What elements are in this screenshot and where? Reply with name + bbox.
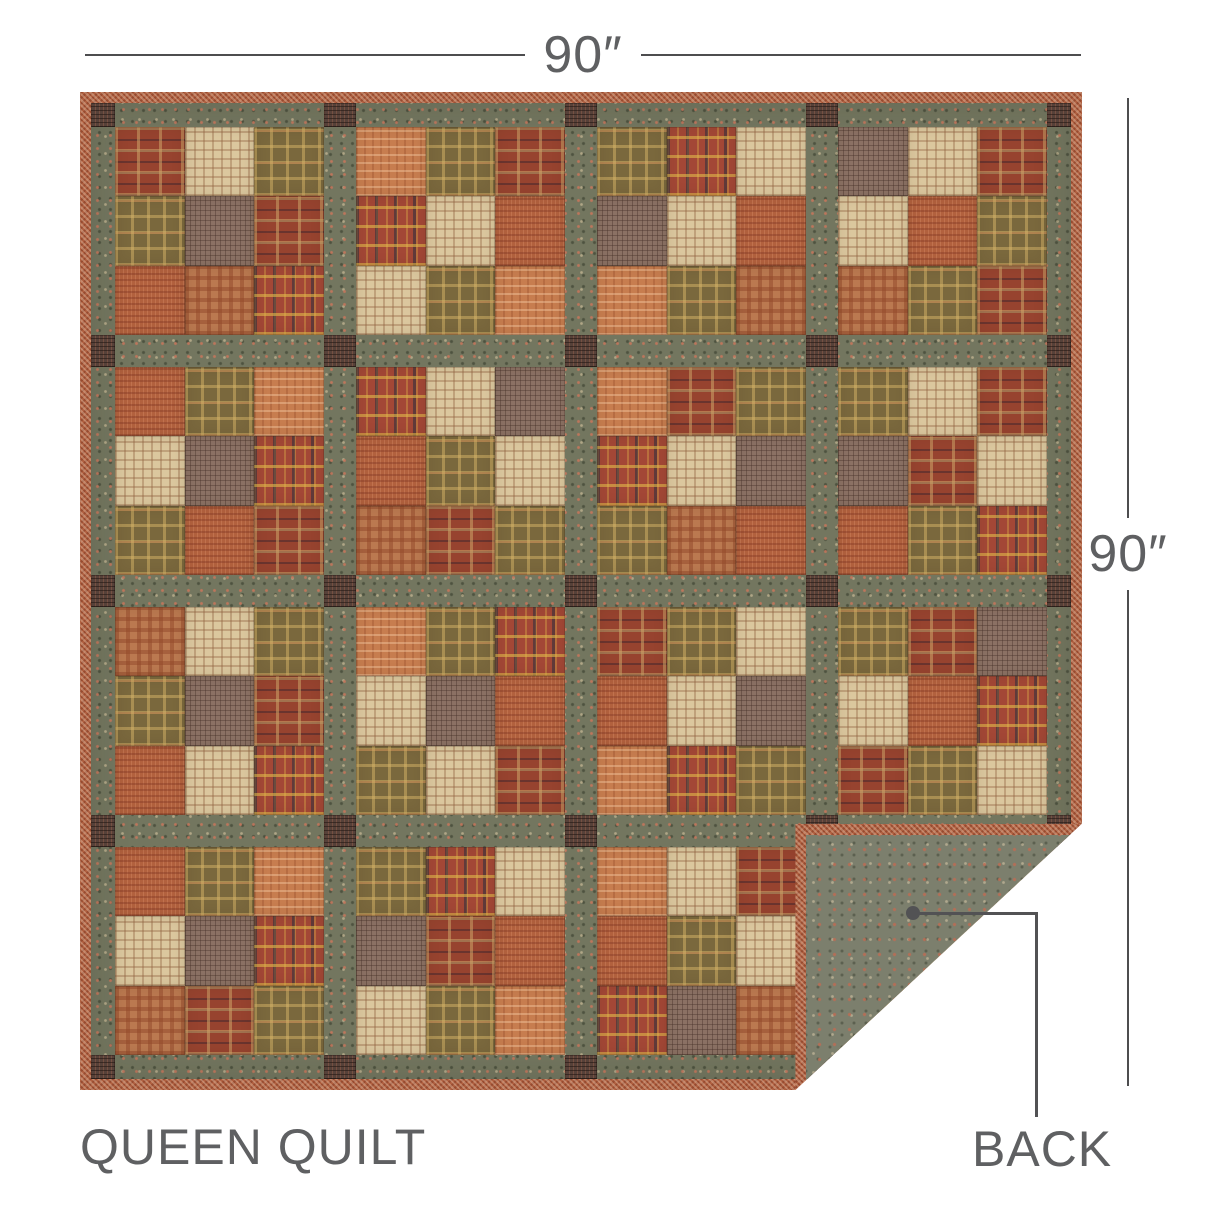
width-dimension-label: 90″ (525, 29, 640, 81)
quilt-patch (495, 367, 565, 436)
corner-post (91, 575, 115, 607)
corner-post (91, 815, 115, 847)
quilt-block (838, 367, 1047, 575)
product-dimension-diagram: 90″ 90″ QUEEN QUILT BACK (0, 0, 1214, 1214)
quilt-patch (838, 196, 908, 265)
quilt-patch (667, 607, 737, 676)
quilt-photo (80, 92, 1082, 1090)
quilt-block (115, 367, 324, 575)
corner-post (565, 815, 597, 847)
corner-post (1047, 103, 1071, 127)
quilt-patch (185, 266, 255, 335)
quilt-patch (356, 436, 426, 505)
corner-post (806, 103, 838, 127)
width-dimension-line-right (641, 54, 1081, 56)
quilt-patch (667, 266, 737, 335)
quilt-patch (977, 506, 1047, 575)
quilt-patch (736, 676, 806, 745)
corner-post (324, 575, 356, 607)
back-label: BACK (972, 1124, 1108, 1174)
quilt-patch (185, 127, 255, 196)
height-dimension: 90″ (1102, 98, 1154, 1086)
quilt-patch (597, 436, 667, 505)
quilt-patch (254, 746, 324, 815)
corner-post (324, 335, 356, 367)
quilt-patch (115, 916, 185, 985)
quilt-patch (667, 436, 737, 505)
quilt-block (597, 847, 806, 1055)
quilt-patch (667, 506, 737, 575)
quilt-patch (115, 196, 185, 265)
quilt-patch (597, 127, 667, 196)
quilt-patch (736, 196, 806, 265)
quilt-patch (495, 506, 565, 575)
quilt-patch (115, 367, 185, 436)
quilt-patch (115, 266, 185, 335)
quilt-patch (356, 676, 426, 745)
quilt-patch (908, 127, 978, 196)
quilt-block (597, 607, 806, 815)
quilt-patch (667, 127, 737, 196)
quilt-patch (356, 127, 426, 196)
quilt-patch (977, 676, 1047, 745)
quilt-patch (977, 266, 1047, 335)
quilt-patch (185, 367, 255, 436)
quilt-patch (254, 847, 324, 916)
quilt-block (838, 127, 1047, 335)
quilt-patch (115, 676, 185, 745)
quilt-patch (356, 986, 426, 1055)
quilt-patch (426, 676, 496, 745)
quilt-patch (736, 266, 806, 335)
back-pointer-line-vertical (1035, 912, 1038, 1117)
corner-post (324, 103, 356, 127)
quilt-patch (597, 916, 667, 985)
quilt-patch (254, 986, 324, 1055)
quilt-patch (115, 436, 185, 505)
quilt-patch (908, 367, 978, 436)
quilt-patch (908, 506, 978, 575)
width-dimension-line-left (85, 54, 525, 56)
corner-post (565, 103, 597, 127)
quilt-patch (495, 746, 565, 815)
quilt-patch (356, 916, 426, 985)
corner-post (91, 335, 115, 367)
corner-post (91, 103, 115, 127)
quilt-patch (356, 506, 426, 575)
quilt-patch (254, 506, 324, 575)
quilt-patch (908, 607, 978, 676)
quilt-patch (667, 986, 737, 1055)
quilt-patch (254, 127, 324, 196)
quilt-patch (736, 367, 806, 436)
quilt-patch (254, 916, 324, 985)
quilt-patch (426, 986, 496, 1055)
quilt-patch (667, 196, 737, 265)
quilt-patch (254, 266, 324, 335)
quilt-patch (254, 676, 324, 745)
quilt-patch (908, 266, 978, 335)
corner-post (91, 1055, 115, 1079)
quilt-patch (495, 676, 565, 745)
quilt-patch (838, 367, 908, 436)
quilt-block (838, 607, 1047, 815)
height-dimension-label: 90″ (1088, 518, 1167, 590)
quilt-block (115, 127, 324, 335)
quilt-patch (356, 196, 426, 265)
quilt-patch (426, 367, 496, 436)
quilt-patch (495, 916, 565, 985)
quilt-patch (254, 607, 324, 676)
quilt-patch (667, 367, 737, 436)
quilt-patch (495, 266, 565, 335)
quilt-patch (426, 607, 496, 676)
quilt-patch (977, 436, 1047, 505)
quilt-patch (977, 607, 1047, 676)
quilt-patch (736, 436, 806, 505)
quilt-patch (185, 986, 255, 1055)
quilt-patch (667, 847, 737, 916)
quilt-patch (597, 196, 667, 265)
quilt-patch (597, 607, 667, 676)
quilt-patch (736, 127, 806, 196)
quilt-patch (908, 746, 978, 815)
quilt-patch (838, 676, 908, 745)
quilt-block (597, 127, 806, 335)
quilt-patch (254, 367, 324, 436)
quilt-patch (838, 436, 908, 505)
quilt-patch (495, 847, 565, 916)
quilt-block (115, 607, 324, 815)
quilt-patch (495, 196, 565, 265)
quilt-block (356, 367, 565, 575)
quilt-patch (185, 847, 255, 916)
quilt-patch (838, 506, 908, 575)
quilt-patch (667, 676, 737, 745)
quilt-patch (356, 367, 426, 436)
quilt-patch (185, 676, 255, 745)
quilt-patch (597, 266, 667, 335)
quilt-patch (356, 847, 426, 916)
quilt-patch (667, 746, 737, 815)
quilt-patch (597, 746, 667, 815)
quilt-patch (356, 266, 426, 335)
quilt-patch (426, 127, 496, 196)
quilt-block (597, 367, 806, 575)
quilt-patch (908, 676, 978, 745)
quilt-patch (736, 746, 806, 815)
corner-post (1047, 575, 1071, 607)
quilt-patch (356, 746, 426, 815)
quilt-patch (426, 196, 496, 265)
quilt-block (115, 847, 324, 1055)
quilt-patch (426, 436, 496, 505)
corner-post (806, 575, 838, 607)
quilt-patch (495, 607, 565, 676)
quilt-patch (254, 196, 324, 265)
corner-post (565, 335, 597, 367)
quilt-patch (185, 436, 255, 505)
corner-post (1047, 335, 1071, 367)
quilt-patch (597, 847, 667, 916)
folded-corner-backing (795, 824, 1082, 1090)
quilt-patch (838, 127, 908, 196)
quilt-patch (977, 746, 1047, 815)
quilt-block (356, 127, 565, 335)
quilt-patch (185, 506, 255, 575)
height-dimension-line-bottom (1127, 590, 1129, 1086)
corner-post (565, 575, 597, 607)
product-name-label: QUEEN QUILT (80, 1122, 426, 1172)
quilt-patch (185, 196, 255, 265)
corner-post (1047, 1055, 1071, 1079)
quilt-patch (115, 607, 185, 676)
quilt-block (356, 607, 565, 815)
quilt-patch (838, 607, 908, 676)
corner-post (565, 1055, 597, 1079)
quilt-block (356, 847, 565, 1055)
quilt-patch (185, 607, 255, 676)
quilt-patch (908, 436, 978, 505)
quilt-patch (426, 847, 496, 916)
quilt-patch (426, 506, 496, 575)
quilt-patch (667, 916, 737, 985)
quilt-patch (254, 436, 324, 505)
quilt-patch (597, 676, 667, 745)
quilt-patch (356, 607, 426, 676)
quilt-patch (495, 436, 565, 505)
quilt-patch (185, 916, 255, 985)
quilt-patch (185, 746, 255, 815)
quilt-patch (426, 746, 496, 815)
quilt-patch (495, 127, 565, 196)
quilt-patch (838, 266, 908, 335)
corner-post (324, 815, 356, 847)
quilt-patch (736, 506, 806, 575)
corner-post (806, 335, 838, 367)
quilt-patch (115, 847, 185, 916)
quilt-patch (838, 746, 908, 815)
quilt-patch (977, 127, 1047, 196)
quilt-patch (495, 986, 565, 1055)
quilt-patch (115, 506, 185, 575)
quilt-patch (426, 916, 496, 985)
quilt-patch (597, 506, 667, 575)
quilt-patch (115, 746, 185, 815)
quilt-patch (908, 196, 978, 265)
height-dimension-line-top (1127, 98, 1129, 518)
quilt-patch (977, 367, 1047, 436)
quilt-patch (115, 986, 185, 1055)
quilt-patch (597, 986, 667, 1055)
quilt-patch (908, 986, 978, 1055)
quilt-patch (426, 266, 496, 335)
quilt-patch (977, 196, 1047, 265)
width-dimension: 90″ (85, 30, 1081, 80)
corner-post (324, 1055, 356, 1079)
quilt-patch (115, 127, 185, 196)
quilt-patch (736, 607, 806, 676)
quilt-patch (597, 367, 667, 436)
back-pointer-line-horizontal (913, 912, 1038, 915)
